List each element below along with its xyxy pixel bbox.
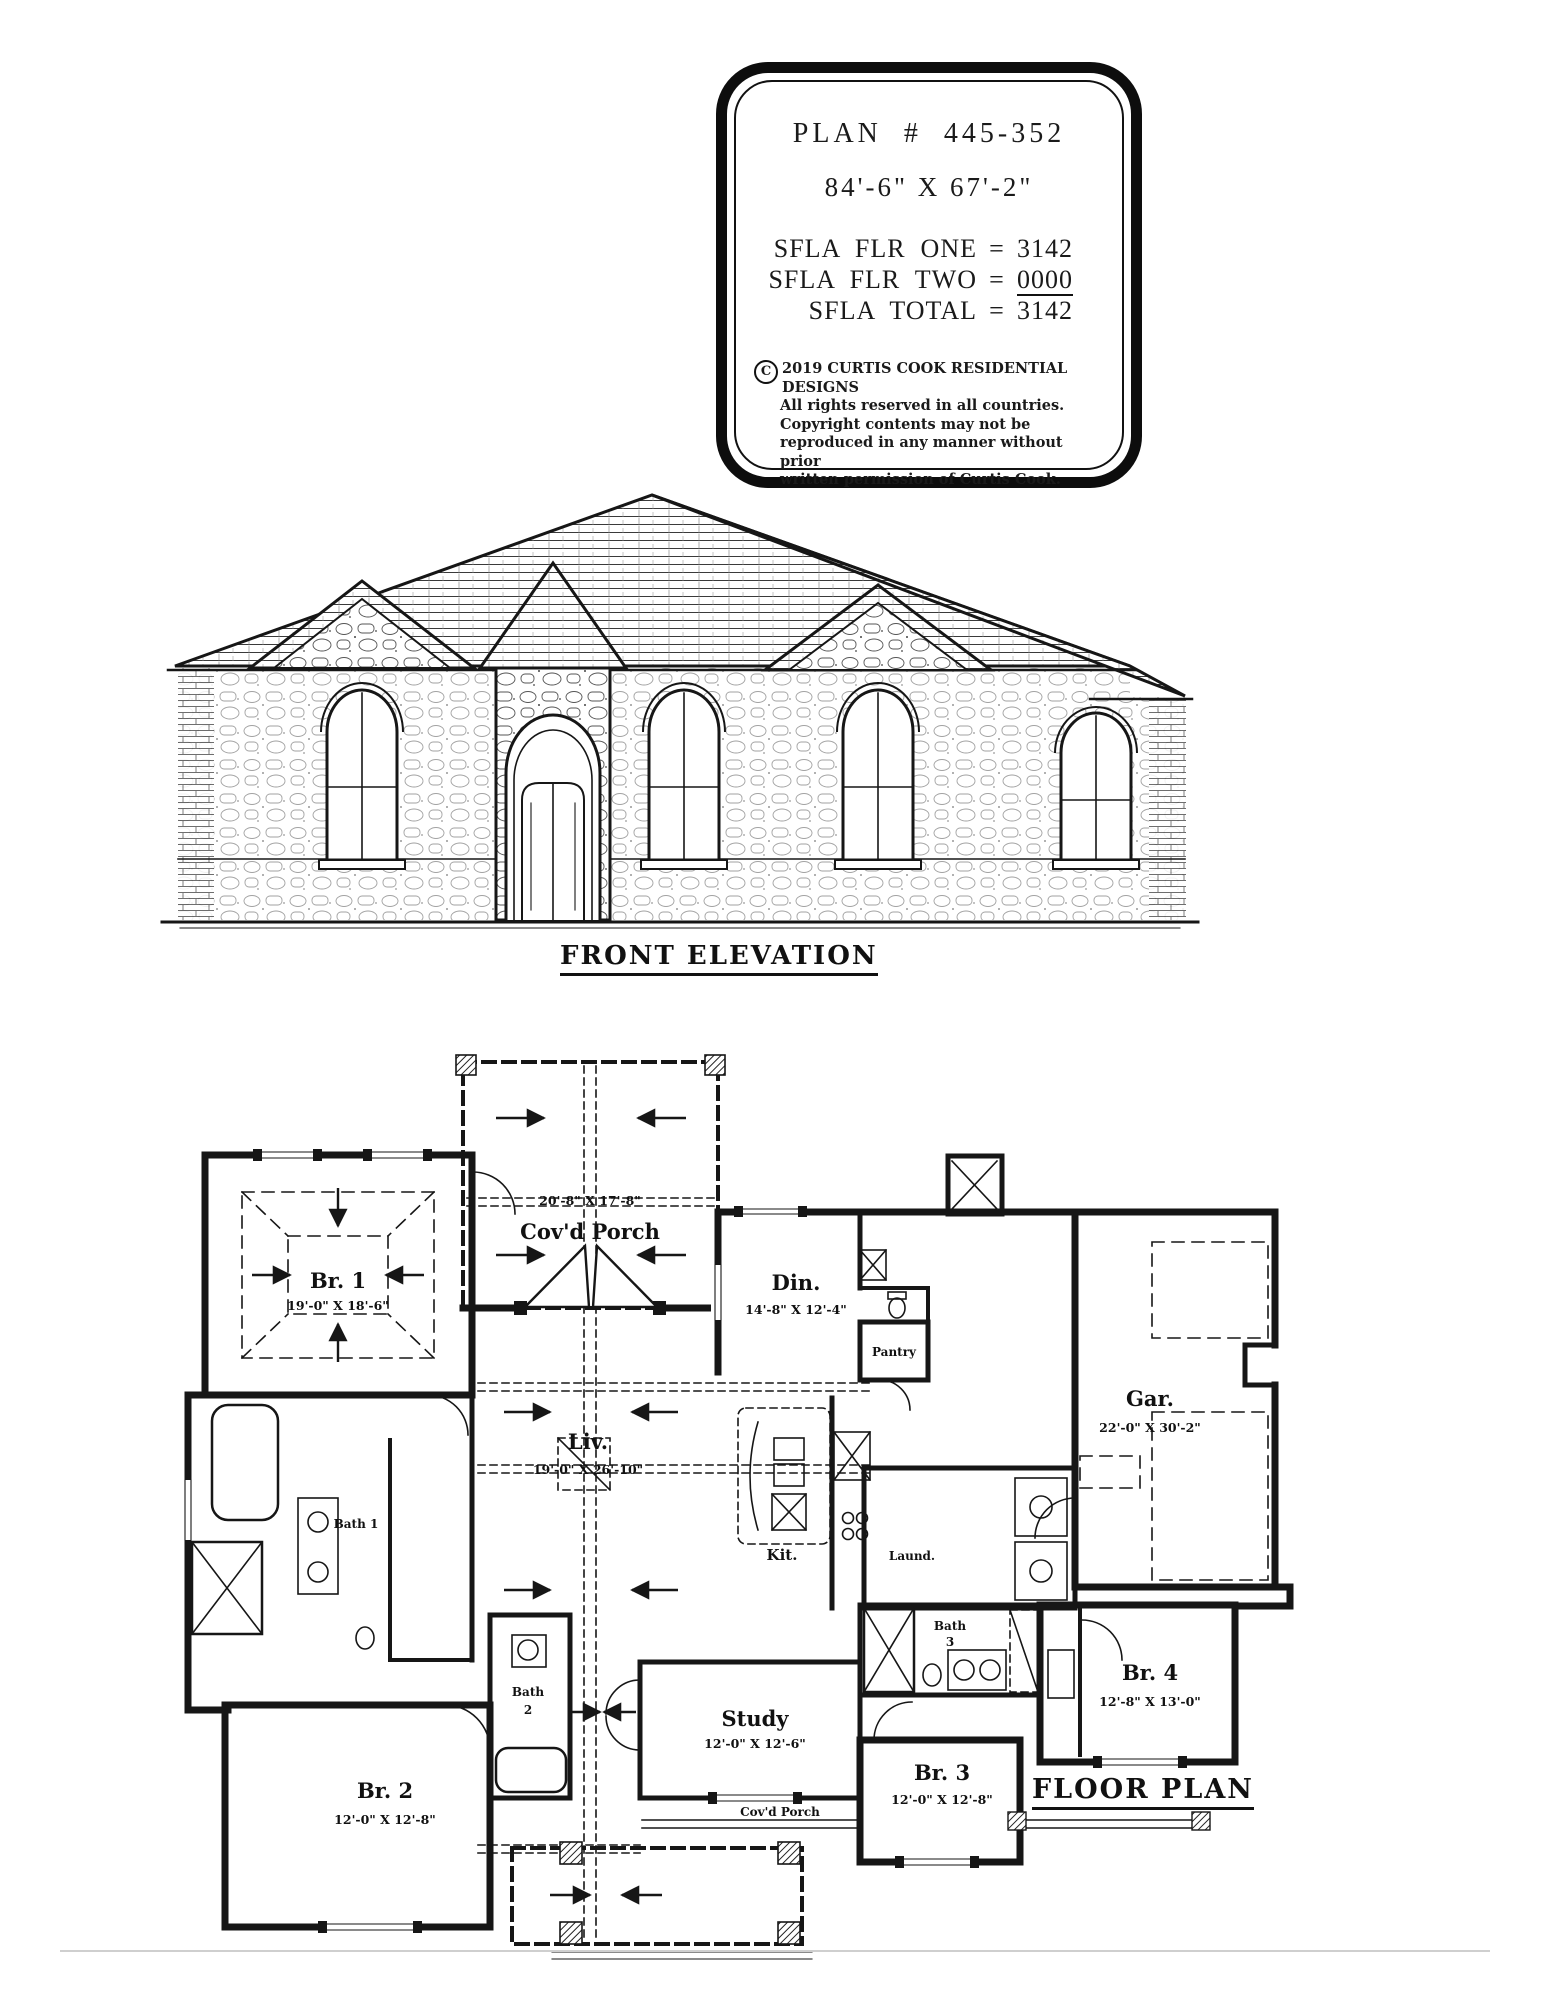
overall-dimensions: 84'-6" X 67'-2" [754,172,1104,203]
room-dim-study: 12'-0" X 12'-6" [704,1736,806,1751]
room-liv: Liv. 19'-0" X 26'-10" [472,1383,870,1660]
window [253,1148,322,1162]
room-label-br1: Br. 1 [310,1268,366,1293]
room-label-bath3-line2: 3 [946,1635,954,1649]
window-arched [835,683,921,869]
dryer [1015,1542,1067,1600]
room-covd-porch-bottom: Cov'd Porch [478,1805,1210,1959]
bathtub [212,1405,278,1520]
powder-room [860,1288,928,1322]
sfla-flr-two-value: 0000 [1017,264,1093,295]
room-label-bath3-line1: Bath [934,1619,966,1633]
room-pantry: Pantry [860,1322,928,1410]
room-br4: Br. 4 12'-8" X 13'-0" [1040,1587,1290,1769]
garage-door-header [1152,1412,1268,1580]
front-elevation-drawing [150,485,1210,935]
sfla-flr-one-label: SFLA FLR ONE [765,233,977,264]
door-arc [473,1172,515,1214]
copyright-line2: All rights reserved in all countries. [780,397,1104,416]
bathtub [496,1748,566,1792]
sfla-table: SFLA FLR ONE = 3142 SFLA FLR TWO = 0000 … [754,233,1104,326]
grade-line [162,922,1198,928]
copyright-line1: 2019 CURTIS COOK RESIDENTIAL DESIGNS [782,360,1104,397]
room-label-din: Din. [772,1270,821,1295]
copyright-line3: Copyright contents may not be [780,416,1104,435]
room-br2: Br. 2 12'-0" X 12'-8" [225,1705,490,1934]
window-arched [319,683,405,869]
floor-plan-title: FLOOR PLAN [1032,1774,1254,1810]
room-study: Study 12'-0" X 12'-6" [606,1662,860,1805]
window [734,1205,807,1218]
copyright-line4: reproduced in any manner without prior [780,434,1104,471]
door-arc [880,1380,910,1410]
room-dim-br2: 12'-0" X 12'-8" [334,1812,436,1827]
room-dim-br1: 19'-0" X 18'-6" [287,1298,389,1313]
closet-shelf [1048,1650,1074,1698]
room-label-covd-porch-bottom: Cov'd Porch [740,1805,820,1819]
room-bath3: Bath 3 [860,1605,1040,1695]
room-din: Din. 14'-8" X 12'-4" [711,1156,1275,1372]
room-br3: Br. 3 12'-0" X 12'-8" [860,1702,1020,1869]
page-rule [60,1950,1490,1952]
toilet [889,1298,905,1318]
door-arc [445,1705,490,1750]
toilet [923,1664,941,1686]
room-label-gar: Gar. [1126,1386,1174,1411]
title-block-inner-border: PLAN # 445-352 84'-6" X 67'-2" SFLA FLR … [734,80,1124,470]
sink [980,1660,1000,1680]
equals-sign: = [977,264,1017,295]
room-label-liv: Liv. [568,1429,608,1454]
window-arched [1053,707,1139,869]
door-arc [428,1395,468,1435]
garage-door-header [1152,1242,1268,1338]
room-bath2: Bath 2 [490,1615,636,1798]
equals-sign: = [977,233,1017,264]
equals-sign: = [977,295,1017,326]
room-dim-br4: 12'-8" X 13'-0" [1099,1694,1201,1709]
door-arc [1082,1620,1122,1660]
room-label-br3: Br. 3 [914,1760,970,1785]
window-arched [641,683,727,869]
plan-number: PLAN # 445-352 [754,118,1104,150]
room-dim-din: 14'-8" X 12'-4" [745,1302,847,1317]
room-covd-porch-top: 20'-8" X 17'-8" Cov'd Porch [456,1055,725,1938]
sfla-total-label: SFLA TOTAL [765,295,977,326]
sink [954,1660,974,1680]
vanity [948,1650,1006,1690]
sfla-row-total: SFLA TOTAL = 3142 [754,295,1104,326]
room-label-study: Study [721,1706,789,1731]
room-br1: Br. 1 19'-0" X 18'-6" [205,1148,515,1435]
floor-plan-drawing: Br. 1 19'-0" X 18'-6" 20'-8" X 17'-8" Co [160,1050,1300,1965]
room-kit: Kit. [738,1398,870,1608]
window [318,1920,422,1934]
window [708,1791,802,1805]
toilet [356,1627,374,1649]
window [1093,1755,1187,1769]
title-block: PLAN # 445-352 84'-6" X 67'-2" SFLA FLR … [716,62,1142,488]
room-dim-liv: 19'-0" X 26'-10" [533,1462,643,1477]
room-label-covd-porch: Cov'd Porch [520,1219,660,1244]
sink [774,1464,804,1486]
sfla-row-two: SFLA FLR TWO = 0000 [754,264,1104,295]
room-label-pantry: Pantry [872,1345,917,1359]
front-elevation-title: FRONT ELEVATION [560,941,878,976]
sfla-flr-one-value: 3142 [1017,233,1093,264]
room-label-br4: Br. 4 [1122,1660,1178,1685]
room-dim-covd-porch: 20'-8" X 17'-8" [539,1193,641,1208]
room-label-bath2-line2: 2 [524,1703,532,1717]
window [363,1148,432,1162]
door-arc [606,1716,640,1750]
sfla-total-value: 3142 [1017,295,1093,326]
washer [1015,1478,1067,1536]
front-door [522,783,584,920]
window [711,1265,724,1320]
room-label-bath1: Bath 1 [334,1517,379,1531]
room-dim-br3: 12'-0" X 12'-8" [891,1792,993,1807]
window [895,1855,979,1869]
room-label-kit: Kit. [767,1546,798,1564]
sfla-flr-two-label: SFLA FLR TWO [765,264,977,295]
sink [308,1562,328,1582]
door-arc [606,1680,640,1714]
room-label-bath2-line1: Bath [512,1685,544,1699]
room-laund: Laund. [864,1468,1075,1608]
kitchen-island [738,1408,830,1544]
door-arc [874,1702,912,1740]
sfla-row-one: SFLA FLR ONE = 3142 [754,233,1104,264]
room-dim-gar: 22'-0" X 30'-2" [1099,1420,1201,1435]
sink [518,1640,538,1660]
attic-access [1080,1456,1140,1488]
sink [308,1512,328,1532]
room-label-laund: Laund. [889,1549,935,1563]
copyright-block: C 2019 CURTIS COOK RESIDENTIAL DESIGNS A… [754,360,1104,490]
window [181,1480,195,1540]
room-bath1: Bath 1 [181,1395,472,1710]
blueprint-sheet: PLAN # 445-352 84'-6" X 67'-2" SFLA FLR … [0,0,1545,2000]
copyright-icon: C [754,360,778,384]
room-label-br2: Br. 2 [357,1778,413,1803]
